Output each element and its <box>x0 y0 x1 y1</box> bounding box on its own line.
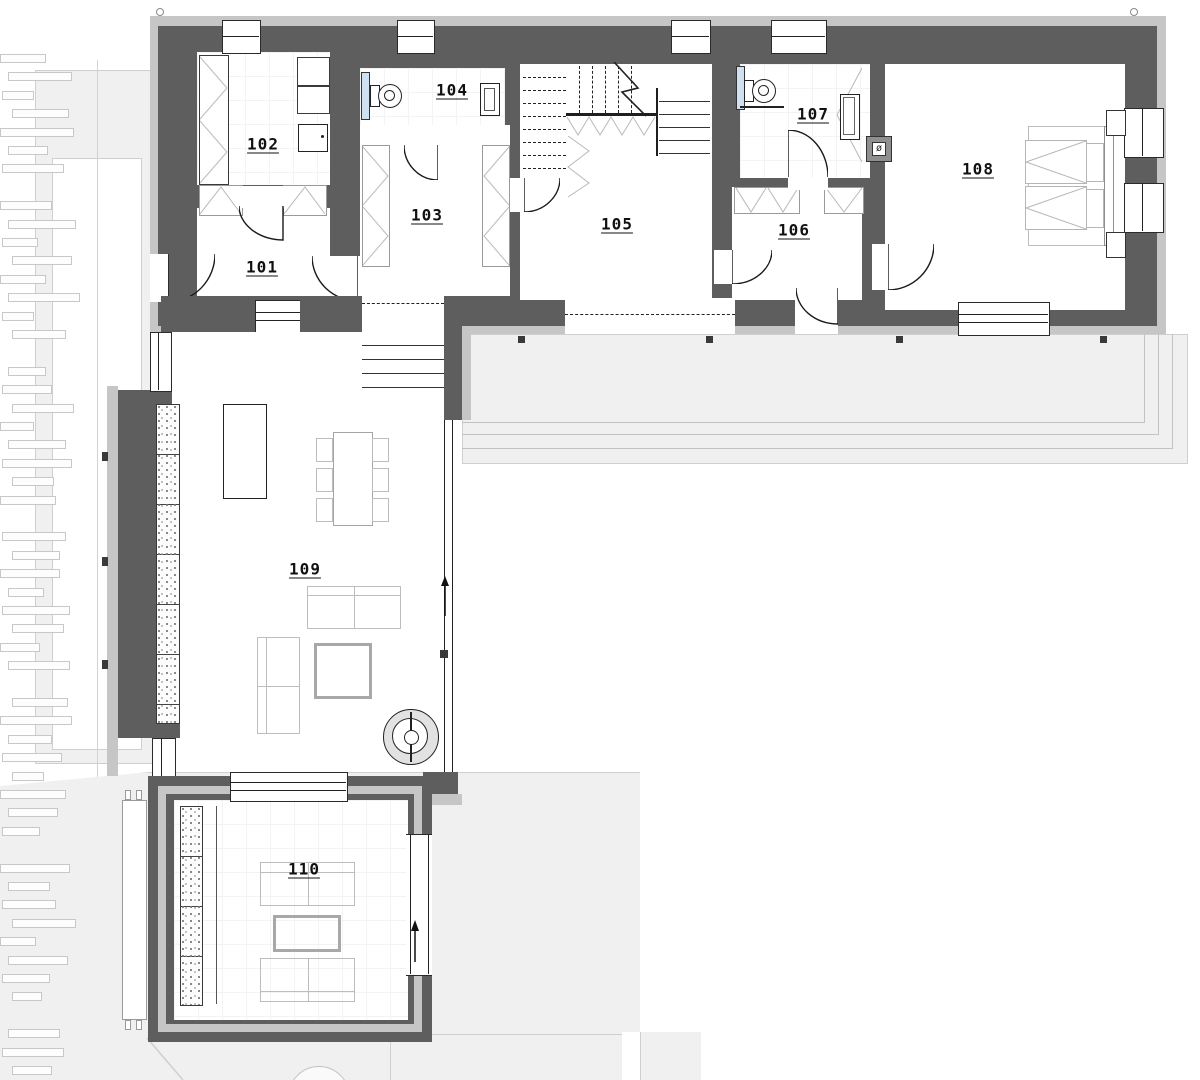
cladding-corner <box>427 794 462 805</box>
understair-closet <box>567 116 657 136</box>
entrance-arrow-icon <box>408 920 422 962</box>
entrance-arrow-icon <box>438 576 452 616</box>
window <box>671 20 711 54</box>
window <box>255 300 302 334</box>
room-103-label: 103 <box>411 206 443 225</box>
window-glass-line <box>255 312 300 313</box>
door-opening <box>240 186 284 208</box>
chimney-symbol: ø <box>866 136 892 162</box>
bench-leg <box>136 790 142 800</box>
sofa <box>307 586 401 629</box>
wall-tick <box>102 452 108 461</box>
window-glass-line <box>1142 108 1143 156</box>
wall-109-corner <box>118 722 180 738</box>
sofa-split-line <box>354 587 355 628</box>
nightstand <box>1106 232 1126 258</box>
landscape-step-bar <box>12 772 44 781</box>
room-105-label: 105 <box>601 215 633 234</box>
stair-tread-line <box>659 101 710 102</box>
toilet-bowl-icon <box>758 85 769 96</box>
bed-mattress-icon <box>1026 187 1086 229</box>
landscape-step-bar <box>8 1029 60 1038</box>
stair-tread-dashed-line <box>523 77 566 78</box>
landscape-step-bar <box>8 588 44 597</box>
landscape-step-bar <box>2 312 34 321</box>
wardrobe-icon <box>363 146 389 266</box>
cabinet <box>840 94 860 140</box>
landscape-step-bar <box>12 404 74 413</box>
landscape-step-bar <box>0 201 52 210</box>
closet-icon <box>200 186 242 215</box>
window-glass-line <box>771 36 825 37</box>
wardrobe <box>734 187 800 214</box>
landscape-step-bar <box>2 1048 64 1057</box>
landscape-step-bar <box>2 164 64 173</box>
landscape-step-bar <box>8 146 48 155</box>
window-glass-line <box>230 790 346 791</box>
window-glass-line <box>958 314 1048 315</box>
cabinet-door-icon <box>843 97 855 135</box>
door-arc <box>312 256 358 301</box>
landscape-step-bar <box>12 698 68 707</box>
stair-tread-line <box>362 373 444 374</box>
sofa-split-line <box>308 959 309 1001</box>
door-opening <box>872 244 888 290</box>
stair-tread-line <box>659 114 710 115</box>
interior-steps <box>362 296 444 392</box>
survey-marker-icon <box>1130 8 1138 16</box>
landscape-step-bar <box>2 900 56 909</box>
stair-tread-dashed-line <box>523 90 566 91</box>
window-glazed <box>361 72 370 120</box>
window-glass-line <box>222 36 259 37</box>
sofa <box>260 958 355 1002</box>
landscape-step-bar <box>12 551 60 560</box>
stone-lining <box>156 404 180 724</box>
closet <box>199 185 243 216</box>
landscape-step-bar <box>12 256 72 265</box>
room-102-label: 102 <box>247 135 279 154</box>
bench-leg <box>125 790 131 800</box>
terrain-slope-line <box>145 1038 185 1080</box>
door-arc <box>239 206 284 241</box>
wardrobe-icon <box>735 188 799 213</box>
landscape-step-bar <box>12 477 54 486</box>
landscape-step-bar <box>8 220 76 229</box>
bed-mattress <box>1025 186 1087 230</box>
wardrobe <box>199 55 229 185</box>
chair <box>372 438 389 462</box>
closet-icon <box>567 116 657 136</box>
toilet-bowl-icon <box>384 90 395 101</box>
bed-mattress-icon <box>1026 141 1086 183</box>
landscape-step-bar <box>12 919 76 928</box>
dining-table <box>333 432 373 526</box>
bench <box>122 800 147 1020</box>
chair <box>372 468 389 492</box>
glass-wall-line <box>452 420 453 772</box>
landscape-step-bar <box>0 128 74 137</box>
landscape-step-bar <box>2 532 66 541</box>
door-arc <box>796 288 838 325</box>
landscape-step-bar <box>8 882 50 891</box>
room-110-label: 110 <box>288 860 320 879</box>
door-opening <box>788 178 828 190</box>
armchair <box>257 637 300 734</box>
cladding-anchor-tick <box>896 336 903 343</box>
bed-headboard <box>1104 126 1114 246</box>
room-109-floor <box>168 332 444 772</box>
door-opening <box>714 250 734 284</box>
window <box>150 332 172 392</box>
sliding-door-opening <box>565 298 735 334</box>
room-107-label: 107 <box>797 105 829 124</box>
terrain-patch-bottom-right <box>640 1032 701 1080</box>
landscape-steps <box>0 0 100 1080</box>
landscape-step-bar <box>12 109 69 118</box>
wall-109-corner <box>118 390 172 404</box>
window-glass-line <box>1142 183 1143 231</box>
stair-tread-dashed-line <box>523 116 566 117</box>
stove-flue-dot <box>404 730 419 745</box>
stair-tread-dashed-line <box>618 66 619 113</box>
shelf-cabinet <box>297 86 330 114</box>
landscape-step-bar <box>12 624 64 633</box>
landscape-step-bar <box>12 330 66 339</box>
door-arc <box>888 244 934 290</box>
wall-tick <box>102 557 108 566</box>
stair-tread-dashed-line <box>579 66 580 113</box>
kitchen-island <box>223 404 267 499</box>
door-arc <box>732 250 772 284</box>
glass-door-handle <box>440 650 448 658</box>
stair-tread-line <box>659 140 710 141</box>
glass-wall-line <box>428 834 429 974</box>
bench-leg <box>125 1020 131 1030</box>
room-104-label: 104 <box>436 81 468 100</box>
landscape-step-bar <box>0 937 36 946</box>
terrace-edge-line <box>462 334 1145 423</box>
toilet-icon <box>378 84 402 108</box>
landscape-step-bar <box>8 440 66 449</box>
cladding-pier <box>462 334 471 420</box>
landscape-step-bar <box>0 790 66 799</box>
landscape-step-bar <box>2 827 40 836</box>
landscape-step-bar <box>8 72 72 81</box>
landscape-step-bar <box>0 864 70 873</box>
window <box>958 302 1050 336</box>
landscape-step-bar <box>0 569 60 578</box>
understair-closet <box>567 136 590 198</box>
stair-tread-dashed-line <box>523 142 566 143</box>
stair-tread-line <box>362 359 444 360</box>
level-change-dash-line <box>362 303 444 304</box>
stair-flight-upper <box>522 64 566 176</box>
window-glass-line <box>158 332 159 390</box>
coffee-table <box>273 915 341 952</box>
chimney-flue-label: ø <box>872 142 886 156</box>
wall-pier <box>300 296 362 332</box>
landscape-step-bar <box>0 643 40 652</box>
sliding-door-dash-line <box>565 314 735 315</box>
landscape-step-bar <box>0 496 56 505</box>
window-glass-line <box>671 36 709 37</box>
bed-mattress <box>1025 140 1087 184</box>
landscape-step-bar <box>2 606 70 615</box>
floor-plan-canvas: ø <box>0 0 1200 1080</box>
wall-109-left <box>118 390 156 738</box>
room-108-label: 108 <box>962 160 994 179</box>
landscape-step-bar <box>8 956 68 965</box>
window-glass-line <box>958 322 1048 323</box>
bench-leg <box>136 1020 142 1030</box>
sink-basin-icon <box>484 88 495 111</box>
landscape-step-bar <box>0 716 72 725</box>
window <box>152 738 176 778</box>
stair-tread-line <box>659 127 710 128</box>
window-glass-line <box>230 782 346 783</box>
landscape-step-bar <box>2 91 34 100</box>
wardrobe-icon <box>483 146 509 266</box>
landscape-step-bar <box>8 808 58 817</box>
bed-pillow <box>1086 189 1104 228</box>
shelf-cabinet <box>297 57 330 86</box>
landscape-step-bar <box>0 275 46 284</box>
stair-tread-dashed-line <box>523 168 566 169</box>
closet <box>283 185 327 216</box>
landscape-step-bar <box>8 661 70 670</box>
room-109-label: 109 <box>289 560 321 579</box>
window <box>1124 183 1164 233</box>
wall-pier <box>161 296 255 332</box>
toilet-icon <box>752 79 776 103</box>
landscape-step-bar <box>0 422 34 431</box>
landscape-step-bar <box>2 385 52 394</box>
door-arc <box>404 145 438 180</box>
appliance <box>298 124 328 152</box>
armchair-line <box>258 686 299 687</box>
window <box>397 20 435 54</box>
door-opening <box>404 126 438 146</box>
landscape-step-bar <box>12 992 42 1001</box>
landscape-step-bar <box>2 459 72 468</box>
wood-stove-icon <box>383 709 439 765</box>
half-wall-line <box>740 106 784 108</box>
closet-icon <box>284 186 326 215</box>
stair-flight-down <box>658 88 711 156</box>
stair-tread-dashed-line <box>523 129 566 130</box>
stair-tread-dashed-line <box>592 66 593 113</box>
stair-tread-line <box>362 345 444 346</box>
cladding-left-109 <box>107 386 118 776</box>
wardrobe <box>482 145 510 267</box>
stair-tread-line <box>362 387 444 388</box>
landscape-step-bar <box>12 1066 52 1075</box>
window <box>1124 108 1164 158</box>
wardrobe-icon <box>825 188 863 213</box>
door-arc <box>788 130 828 177</box>
landscape-step-bar <box>2 238 38 247</box>
chair <box>316 498 333 522</box>
door-arc <box>524 178 560 212</box>
cladding-anchor-tick <box>706 336 713 343</box>
landscape-step-bar <box>8 367 46 376</box>
closet-icon <box>567 136 590 198</box>
nightstand <box>1106 110 1126 136</box>
cladding-anchor-tick <box>518 336 525 343</box>
wardrobe <box>824 187 864 214</box>
stair-tread-dashed-line <box>523 103 566 104</box>
wall-pier <box>444 296 462 420</box>
chair <box>372 498 389 522</box>
coffee-table <box>314 643 372 699</box>
cladding-anchor-tick <box>1100 336 1107 343</box>
window-glass-line <box>397 36 433 37</box>
sink <box>480 83 500 116</box>
stair-tread-dashed-line <box>605 66 606 113</box>
chair <box>316 438 333 462</box>
stone-lining <box>180 806 203 1006</box>
stair-tread-dashed-line <box>631 66 632 113</box>
stair-tread-line <box>659 153 710 154</box>
window-glass-line <box>161 738 162 776</box>
stair-break-line-icon <box>608 62 650 118</box>
room-106-label: 106 <box>778 221 810 240</box>
landscape-step-bar <box>2 974 50 983</box>
window <box>222 20 261 54</box>
survey-marker-icon <box>156 8 164 16</box>
window-glass-line <box>255 320 300 321</box>
door-opening <box>510 178 524 212</box>
appliance-knob-icon <box>321 135 324 138</box>
wall-tick <box>102 660 108 669</box>
room-101-label: 101 <box>246 258 278 277</box>
wardrobe <box>362 145 390 267</box>
landscape-step-bar <box>8 293 80 302</box>
bed-pillow <box>1086 143 1104 182</box>
stair-tread-dashed-line <box>523 155 566 156</box>
wardrobe-icon <box>200 56 228 184</box>
landscape-step-bar <box>2 753 62 762</box>
chair <box>316 468 333 492</box>
landscape-step-bar <box>0 54 46 63</box>
terrain-gap-strip <box>622 1032 640 1080</box>
window <box>771 20 827 54</box>
door-opening <box>150 254 168 302</box>
lining-edge-line <box>216 806 217 1004</box>
sliding-window <box>230 772 348 802</box>
landscape-step-bar <box>8 735 52 744</box>
